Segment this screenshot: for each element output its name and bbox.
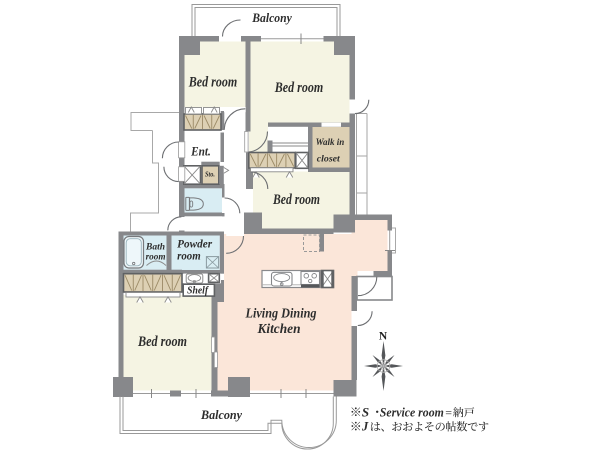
svg-text:closet: closet [317, 154, 340, 164]
svg-text:=: = [445, 405, 452, 419]
svg-text:Shelf: Shelf [187, 285, 210, 296]
svg-text:Living Dining: Living Dining [245, 306, 317, 321]
svg-text:N: N [379, 331, 388, 343]
svg-text:Balcony: Balcony [200, 408, 243, 422]
svg-text:Bed room: Bed room [272, 192, 320, 208]
svg-text:Bath: Bath [145, 242, 165, 252]
svg-text:room: room [177, 249, 201, 263]
svg-text:room: room [146, 252, 166, 262]
svg-text:Balcony: Balcony [251, 11, 292, 25]
svg-text:J: J [361, 420, 369, 434]
svg-text:Bed room: Bed room [137, 334, 187, 350]
svg-text:Bed room: Bed room [188, 75, 237, 91]
svg-text:Bed room: Bed room [274, 80, 323, 96]
svg-text:Kitchen: Kitchen [257, 321, 301, 336]
svg-text:Service room: Service room [380, 405, 444, 419]
svg-text:S: S [362, 404, 369, 419]
svg-text:Sto.: Sto. [205, 171, 215, 179]
svg-text:Ent.: Ent. [190, 145, 211, 159]
svg-text:Walk in: Walk in [316, 138, 345, 148]
